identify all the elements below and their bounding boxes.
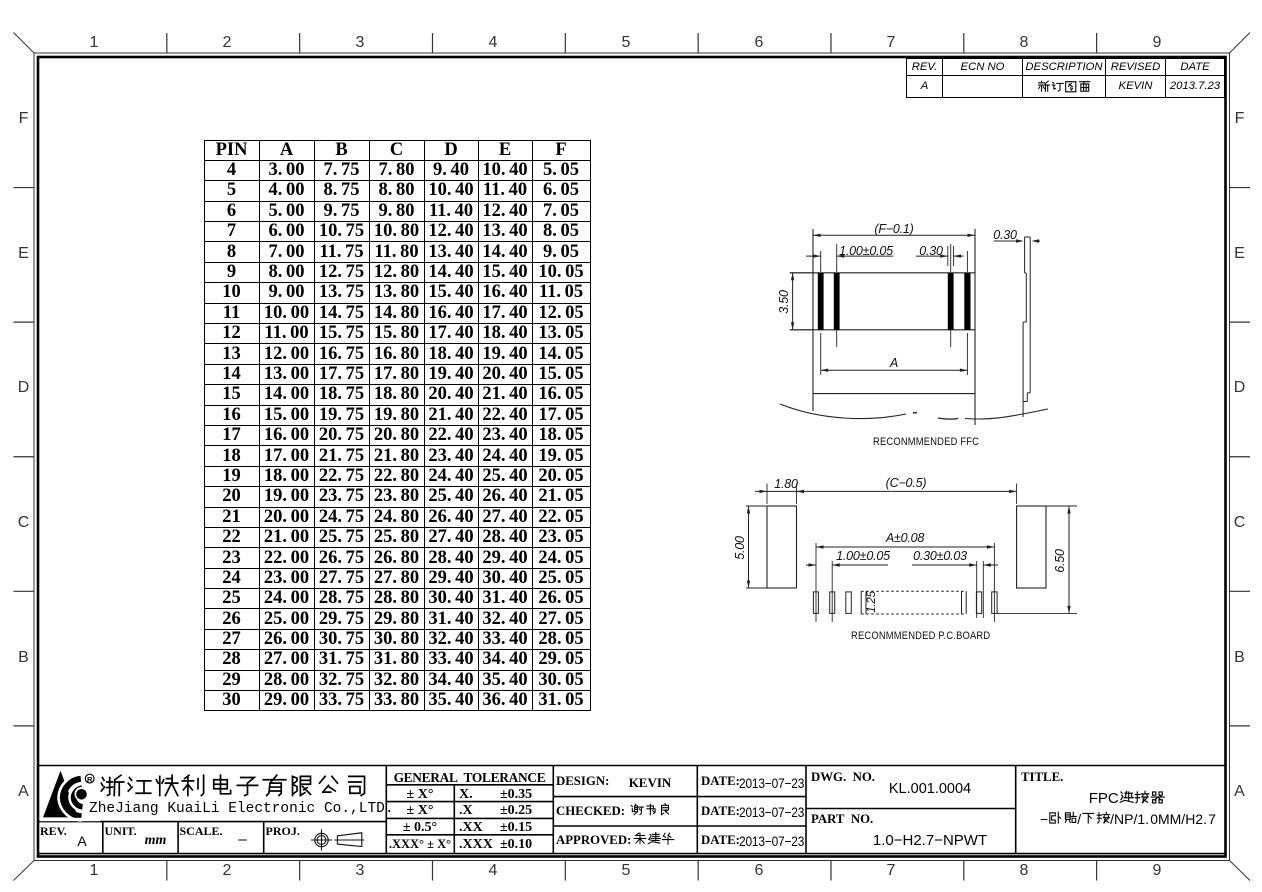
svg-text:R: R [87, 775, 93, 784]
